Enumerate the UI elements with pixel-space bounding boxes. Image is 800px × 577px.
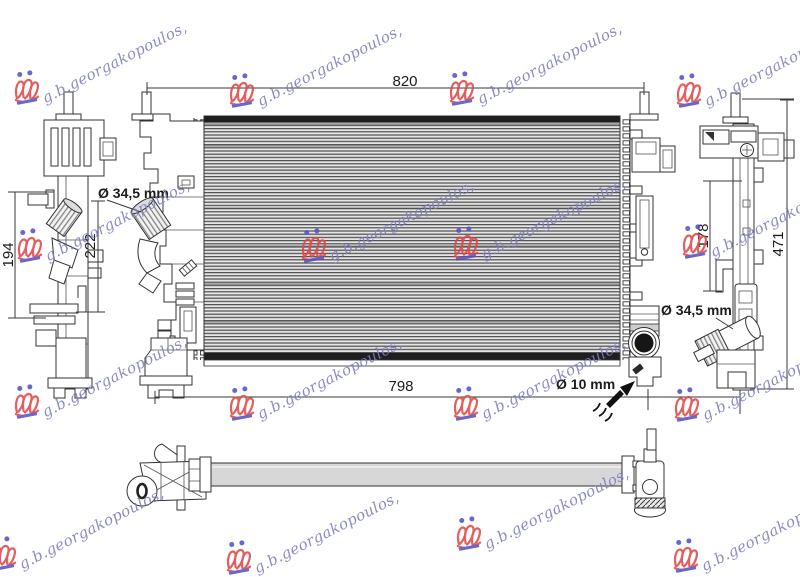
- dim-label-right-height-inner: 178: [696, 211, 712, 261]
- right-tank: [629, 130, 676, 386]
- left-bottom-bracket: [140, 338, 192, 398]
- radiator-core: [194, 116, 630, 366]
- leader-inlet-right: [716, 318, 733, 329]
- dim-label-inlet-diameter-right: Ø 34,5 mm: [661, 302, 732, 318]
- radiator-left-side-view: [28, 92, 116, 398]
- brand-emblem-icon: [225, 540, 252, 575]
- dim-label-bleed-screw-diameter: Ø 10 mm: [556, 376, 615, 392]
- dim-label-left-height-outer: 222: [83, 221, 99, 271]
- radiator-front-view: [129, 92, 675, 398]
- dim-label-width-bottom: 798: [384, 379, 418, 395]
- bottom-outlet-fitting: [622, 429, 666, 517]
- right-mounting-pin: [630, 92, 658, 120]
- outlet-port: [629, 306, 660, 359]
- dim-label-width-top: 820: [388, 74, 422, 90]
- left-tank: [129, 114, 204, 398]
- dim-label-right-height-outer: 471: [771, 219, 787, 269]
- technical-drawing-page: 820 798 194 222 178 471 Ø 34,5 mm Ø 34,5…: [0, 0, 800, 545]
- dim-label-inlet-diameter-left: Ø 34,5 mm: [98, 185, 169, 201]
- radiator-bottom-view: [127, 429, 666, 517]
- dim-label-left-height-inner: 194: [1, 230, 17, 280]
